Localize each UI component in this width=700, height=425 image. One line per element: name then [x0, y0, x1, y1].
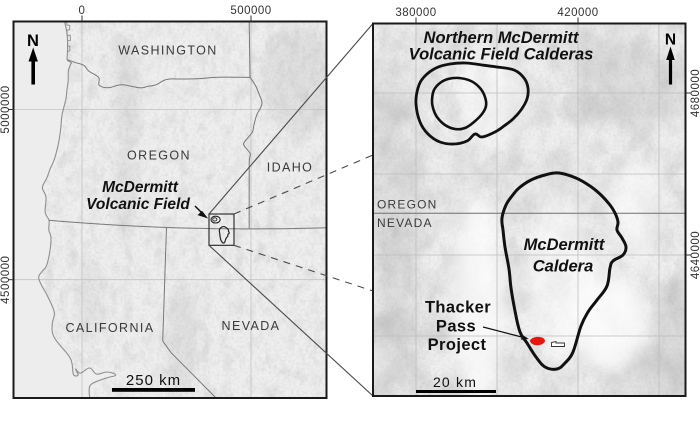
svg-text:250 km: 250 km [126, 372, 181, 389]
svg-text:Volcanic Field: Volcanic Field [86, 196, 190, 213]
svg-text:Volcanic Field Calderas: Volcanic Field Calderas [409, 46, 594, 64]
svg-text:420000: 420000 [557, 7, 598, 19]
svg-text:NEVADA: NEVADA [377, 216, 433, 230]
svg-text:Pass: Pass [436, 318, 476, 336]
svg-text:Northern McDermitt: Northern McDermitt [424, 29, 580, 47]
svg-text:McDermitt: McDermitt [102, 179, 179, 196]
svg-text:4640000: 4640000 [690, 231, 700, 279]
svg-text:5000000: 5000000 [0, 85, 12, 133]
svg-text:20 km: 20 km [433, 374, 477, 390]
svg-text:Project: Project [428, 336, 487, 354]
svg-text:OREGON: OREGON [377, 198, 438, 212]
svg-text:4500000: 4500000 [0, 256, 12, 304]
svg-text:4680000: 4680000 [690, 69, 700, 117]
svg-text:NEVADA: NEVADA [222, 319, 281, 333]
svg-text:McDermitt: McDermitt [524, 236, 606, 254]
svg-text:N: N [665, 32, 676, 49]
svg-text:OREGON: OREGON [127, 149, 191, 163]
svg-text:CALIFORNIA: CALIFORNIA [65, 321, 154, 335]
svg-text:N: N [27, 32, 39, 50]
svg-text:WASHINGTON: WASHINGTON [118, 44, 217, 58]
svg-text:Caldera: Caldera [533, 258, 594, 276]
svg-text:0: 0 [79, 5, 86, 17]
svg-text:Thacker: Thacker [425, 299, 491, 317]
svg-text:380000: 380000 [395, 7, 436, 19]
svg-text:IDAHO: IDAHO [267, 161, 314, 175]
svg-text:500000: 500000 [230, 5, 271, 17]
